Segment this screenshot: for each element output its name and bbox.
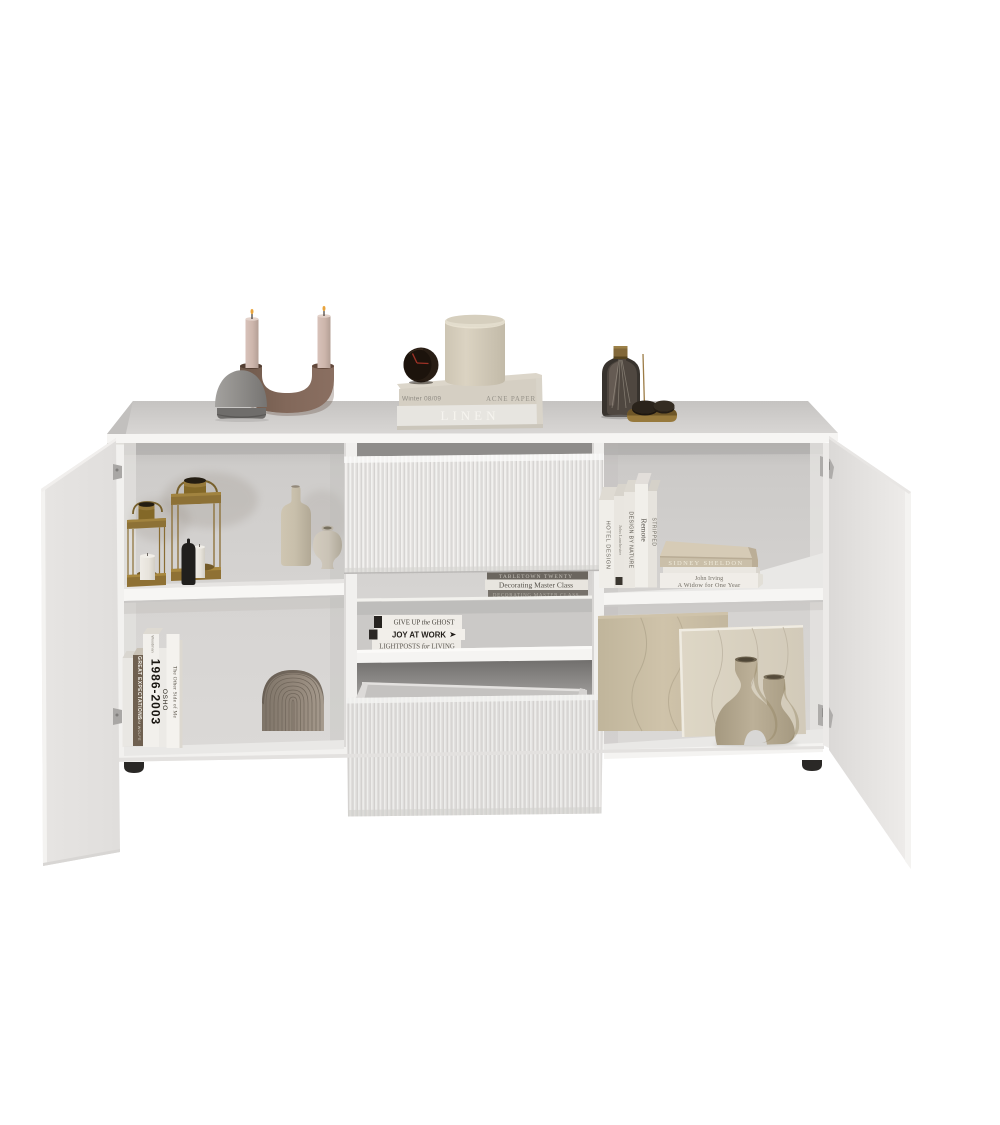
- svg-text:1986-2003: 1986-2003: [149, 659, 163, 725]
- svg-text:GIVE UP the GHOST: GIVE UP the GHOST: [394, 620, 456, 627]
- svg-text:A Widow for One Year: A Widow for One Year: [678, 582, 741, 589]
- svg-text:OSHO: OSHO: [161, 689, 168, 711]
- svg-text:Woodman: Woodman: [151, 635, 155, 652]
- svg-text:TOM WOLFE: TOM WOLFE: [137, 715, 141, 741]
- svg-text:ACNE PAPER: ACNE PAPER: [486, 395, 536, 403]
- svg-text:SIDNEY SHELDON: SIDNEY SHELDON: [668, 560, 743, 567]
- svg-text:GREAT EXPECTATIONS: GREAT EXPECTATIONS: [136, 656, 142, 720]
- svg-text:Decorating Master Class: Decorating Master Class: [499, 581, 573, 590]
- svg-text:John Lanchester: John Lanchester: [618, 525, 623, 555]
- svg-text:TABLETOWN TWENTY: TABLETOWN TWENTY: [499, 574, 573, 580]
- svg-text:JOY AT WORK: JOY AT WORK: [392, 631, 446, 640]
- svg-text:STRIPPED: STRIPPED: [651, 517, 657, 546]
- svg-text:Remote: Remote: [640, 518, 649, 542]
- svg-text:HOTEL DESIGN: HOTEL DESIGN: [605, 521, 611, 570]
- svg-text:Winter 08/09: Winter 08/09: [402, 396, 441, 403]
- svg-text:LINEN: LINEN: [441, 408, 500, 423]
- svg-text:The Other Side of Me: The Other Side of Me: [172, 666, 179, 719]
- svg-text:DESIGN BY NATURE: DESIGN BY NATURE: [628, 512, 634, 569]
